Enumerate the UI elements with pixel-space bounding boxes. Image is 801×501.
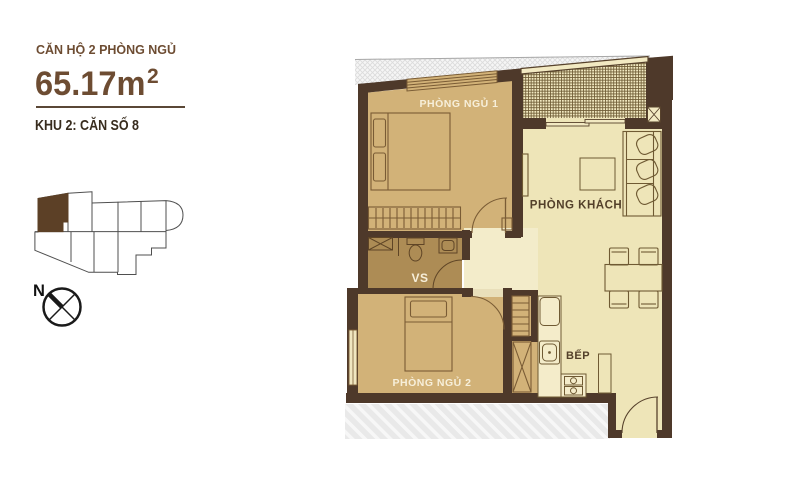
svg-text:BẾP: BẾP xyxy=(566,349,590,362)
svg-text:PHÒNG NGỦ 1: PHÒNG NGỦ 1 xyxy=(419,97,498,110)
svg-text:65.17m: 65.17m xyxy=(35,65,146,103)
svg-text:CĂN HỘ 2 PHÒNG NGỦ: CĂN HỘ 2 PHÒNG NGỦ xyxy=(36,42,176,57)
svg-text:N: N xyxy=(33,282,45,300)
svg-text:KHU 2: CĂN SỐ 8: KHU 2: CĂN SỐ 8 xyxy=(35,116,139,134)
svg-text:2: 2 xyxy=(147,65,159,88)
svg-text:PHÒNG KHÁCH: PHÒNG KHÁCH xyxy=(530,199,622,212)
svg-text:PHÒNG NGỦ 2: PHÒNG NGỦ 2 xyxy=(392,376,471,389)
svg-text:VS: VS xyxy=(411,271,428,285)
